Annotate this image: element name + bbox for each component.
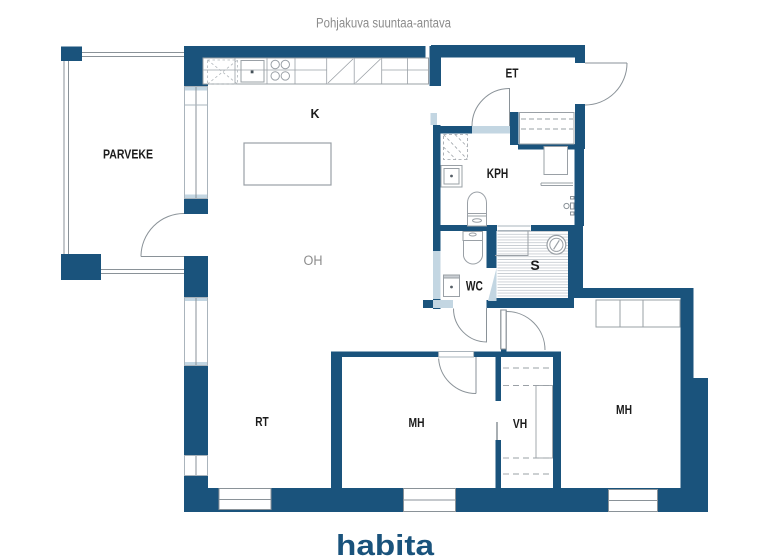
svg-text:K: K xyxy=(310,107,319,121)
svg-text:KPH: KPH xyxy=(487,166,509,181)
svg-text:MH: MH xyxy=(616,402,632,417)
svg-text:WC: WC xyxy=(466,279,483,294)
svg-text:RT: RT xyxy=(255,415,269,429)
svg-text:MH: MH xyxy=(409,415,425,430)
svg-text:habita: habita xyxy=(336,530,435,560)
svg-text:VH: VH xyxy=(513,416,527,431)
svg-text:ET: ET xyxy=(506,67,519,81)
svg-text:S: S xyxy=(530,257,539,273)
svg-text:PARVEKE: PARVEKE xyxy=(103,148,153,162)
svg-text:Pohjakuva suuntaa-antava: Pohjakuva suuntaa-antava xyxy=(316,16,451,31)
svg-text:OH: OH xyxy=(304,253,323,268)
